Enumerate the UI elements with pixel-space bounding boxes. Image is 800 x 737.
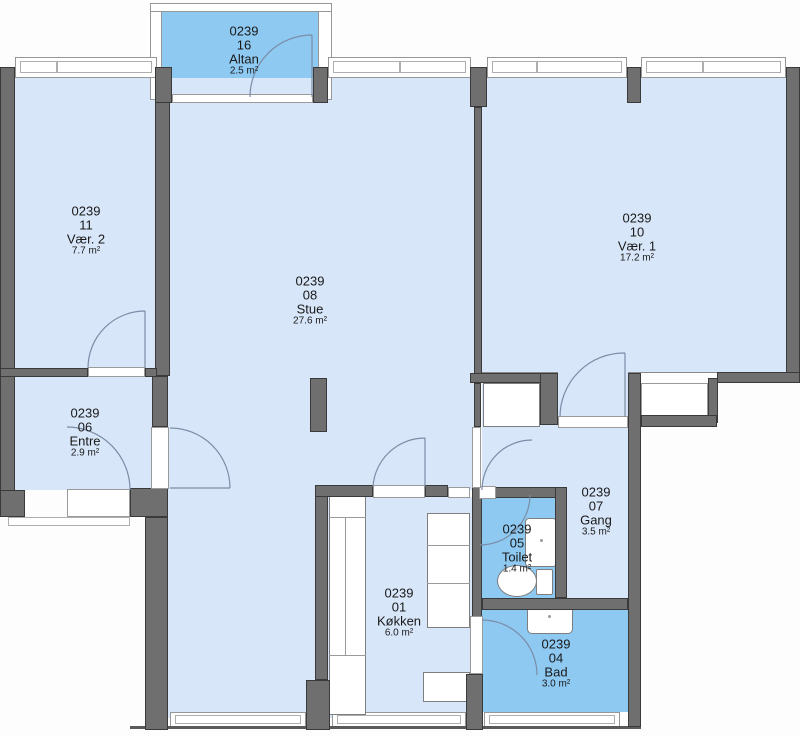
room-number: 11 — [67, 219, 105, 233]
door-arc-entre-stue — [170, 428, 230, 488]
room-number: 10 — [618, 226, 656, 240]
room-unit: 0239 — [229, 25, 259, 39]
room-number: 16 — [229, 39, 259, 53]
door-arc-toilet-gang — [482, 440, 532, 490]
room-label-koekken: 0239 01 Køkken 6.0 m² — [377, 587, 421, 640]
room-label-gang: 0239 07 Gang 3.5 m² — [580, 486, 612, 539]
room-number: 05 — [502, 537, 532, 551]
room-number: 06 — [69, 421, 100, 435]
room-unit: 0239 — [580, 486, 612, 500]
room-area: 7.7 m² — [67, 247, 105, 258]
room-number: 01 — [377, 601, 421, 615]
room-area: 2.5 m² — [229, 67, 259, 78]
room-unit: 0239 — [502, 523, 532, 537]
room-label-vaer1: 0239 10 Vær. 1 17.2 m² — [618, 212, 656, 265]
room-unit: 0239 — [69, 407, 100, 421]
room-label-stue: 0239 08 Stue 27.6 m² — [293, 275, 327, 328]
room-area: 27.6 m² — [293, 317, 327, 328]
room-name: Toilet — [502, 551, 532, 565]
room-area: 17.2 m² — [618, 254, 656, 265]
room-area: 1.4 m² — [502, 565, 532, 576]
room-name: Altan — [229, 53, 259, 67]
floor-plan: 0239 16 Altan 2.5 m² 0239 11 Vær. 2 7.7 … — [0, 0, 800, 737]
room-unit: 0239 — [542, 638, 571, 652]
room-unit: 0239 — [618, 212, 656, 226]
door-arc-bad — [482, 620, 537, 675]
room-area: 2.9 m² — [69, 449, 100, 460]
room-area: 3.0 m² — [542, 680, 571, 691]
room-number: 08 — [293, 289, 327, 303]
room-label-altan: 0239 16 Altan 2.5 m² — [229, 25, 259, 78]
room-unit: 0239 — [67, 205, 105, 219]
room-name: Stue — [293, 303, 327, 317]
room-name: Køkken — [377, 615, 421, 629]
room-unit: 0239 — [293, 275, 327, 289]
room-name: Gang — [580, 514, 612, 528]
door-arc-altan — [250, 35, 312, 97]
room-label-vaer2: 0239 11 Vær. 2 7.7 m² — [67, 205, 105, 258]
door-arc-vaer2 — [88, 311, 145, 368]
door-arc-vaer1 — [560, 353, 625, 417]
room-area: 3.5 m² — [580, 528, 612, 539]
room-label-toilet: 0239 05 Toilet 1.4 m² — [502, 523, 532, 576]
room-number: 07 — [580, 500, 612, 514]
room-name: Bad — [542, 666, 571, 680]
room-name: Entre — [69, 435, 100, 449]
room-label-bad: 0239 04 Bad 3.0 m² — [542, 638, 571, 691]
room-label-entre: 0239 06 Entre 2.9 m² — [69, 407, 100, 460]
door-arc-koekken — [373, 438, 425, 487]
room-name: Vær. 1 — [618, 240, 656, 254]
room-area: 6.0 m² — [377, 629, 421, 640]
room-name: Vær. 2 — [67, 233, 105, 247]
room-number: 04 — [542, 652, 571, 666]
room-unit: 0239 — [377, 587, 421, 601]
